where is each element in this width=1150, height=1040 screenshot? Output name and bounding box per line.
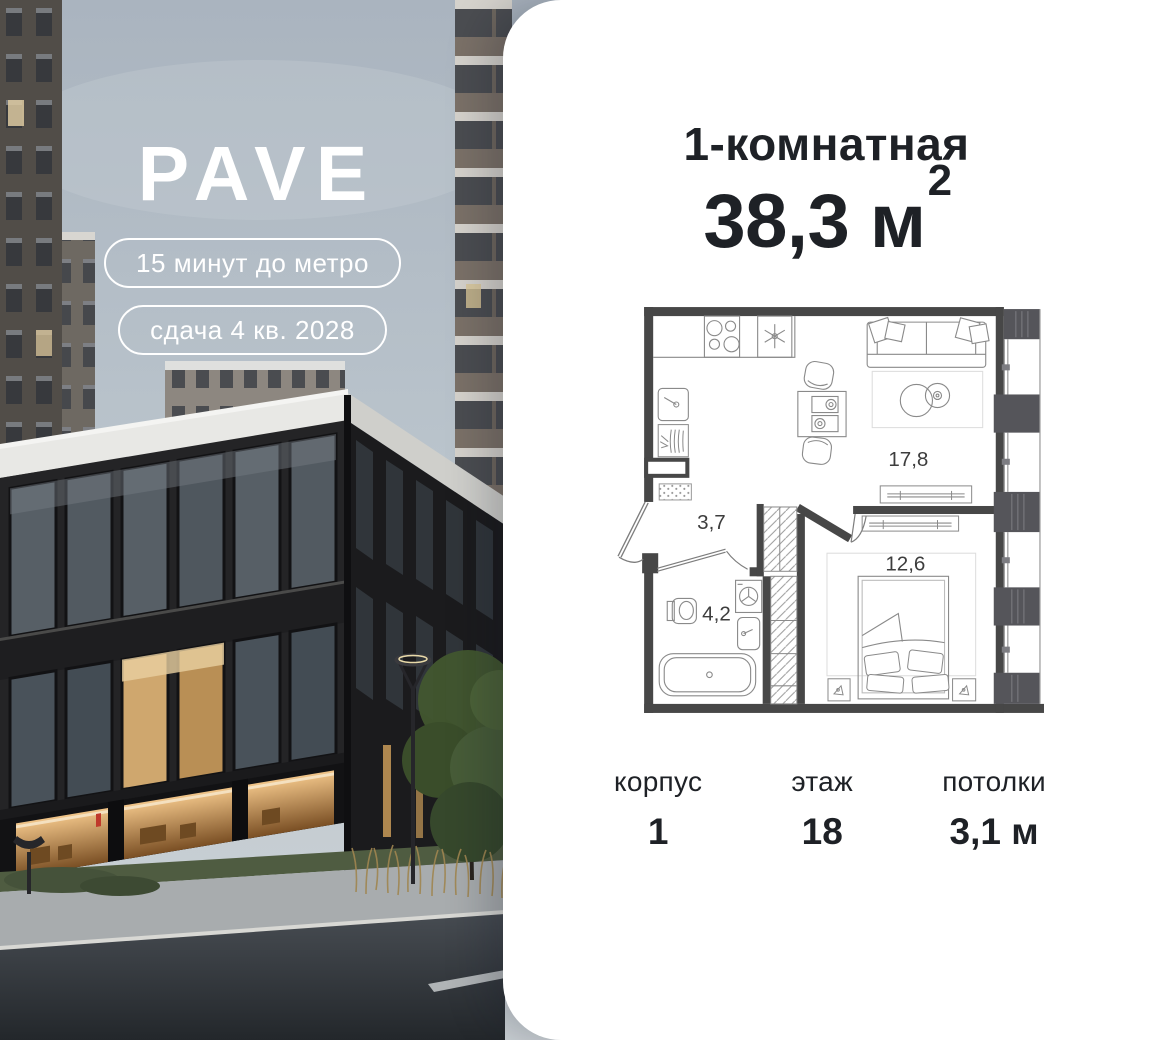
spec-floor-value: 18 — [791, 811, 853, 853]
spec-ceiling-label: потолки — [942, 766, 1046, 798]
spec-floor: этаж 18 — [791, 766, 853, 853]
wardrobe — [771, 576, 797, 704]
spec-building-label: корпус — [614, 766, 702, 798]
room-label-living: 17,8 — [888, 448, 928, 471]
metro-badge: 15 минут до метро — [104, 238, 401, 288]
street-ground — [0, 842, 505, 1040]
bathroom-door — [657, 549, 747, 571]
apartment-area: 38,3 м2 — [503, 184, 1150, 260]
kitchen-sink-icon — [658, 388, 688, 420]
room-label-hallway: 3,7 — [697, 511, 726, 534]
dining-table-icon — [798, 360, 846, 465]
washer-icon — [736, 580, 762, 612]
apartment-card[interactable]: 1-комнатная 38,3 м2 — [503, 0, 1150, 1040]
toilet-icon — [667, 598, 696, 623]
closet — [764, 507, 797, 571]
spec-ceiling-value: 3,1 м — [942, 811, 1046, 853]
badges: 15 минут до метро сдача 4 кв. 2028 — [0, 238, 505, 355]
floor-plan: 17,8 3,7 4,2 12,6 — [614, 294, 1046, 726]
bed-pillows — [864, 650, 949, 694]
pave-logo: PAVE — [0, 136, 505, 213]
nightstand-left — [828, 679, 850, 701]
coffee-tables-icon — [900, 383, 949, 416]
completion-badge: сдача 4 кв. 2028 — [118, 305, 387, 355]
bathtub-icon — [659, 654, 755, 696]
plan-walls — [642, 307, 1044, 713]
spec-row: корпус 1 этаж 18 потолки 3,1 м — [614, 766, 1046, 853]
dishwasher-icon — [658, 425, 688, 457]
wall-niche — [648, 462, 685, 474]
room-label-bedroom: 12,6 — [885, 552, 925, 575]
spec-ceiling: потолки 3,1 м — [942, 766, 1046, 853]
listing-tile[interactable]: PAVE 15 минут до метро сдача 4 кв. 2028 … — [0, 0, 1150, 1040]
bedroom-door — [851, 514, 866, 542]
apartment-type-title: 1-комнатная — [503, 121, 1150, 167]
stove-icon — [704, 316, 739, 357]
room-label-bathroom: 4,2 — [702, 603, 731, 626]
spec-building-value: 1 — [614, 811, 702, 853]
living-rug — [872, 371, 983, 427]
spec-building: корпус 1 — [614, 766, 702, 853]
bath-sink-icon — [738, 617, 760, 649]
nightstand-right — [953, 679, 976, 701]
area-value: 38,3 м — [703, 179, 925, 264]
area-sup: 2 — [928, 156, 952, 205]
spec-floor-label: этаж — [791, 766, 853, 798]
doormat — [659, 484, 691, 500]
sofa-icon — [867, 318, 989, 368]
fridge-icon — [758, 316, 792, 357]
